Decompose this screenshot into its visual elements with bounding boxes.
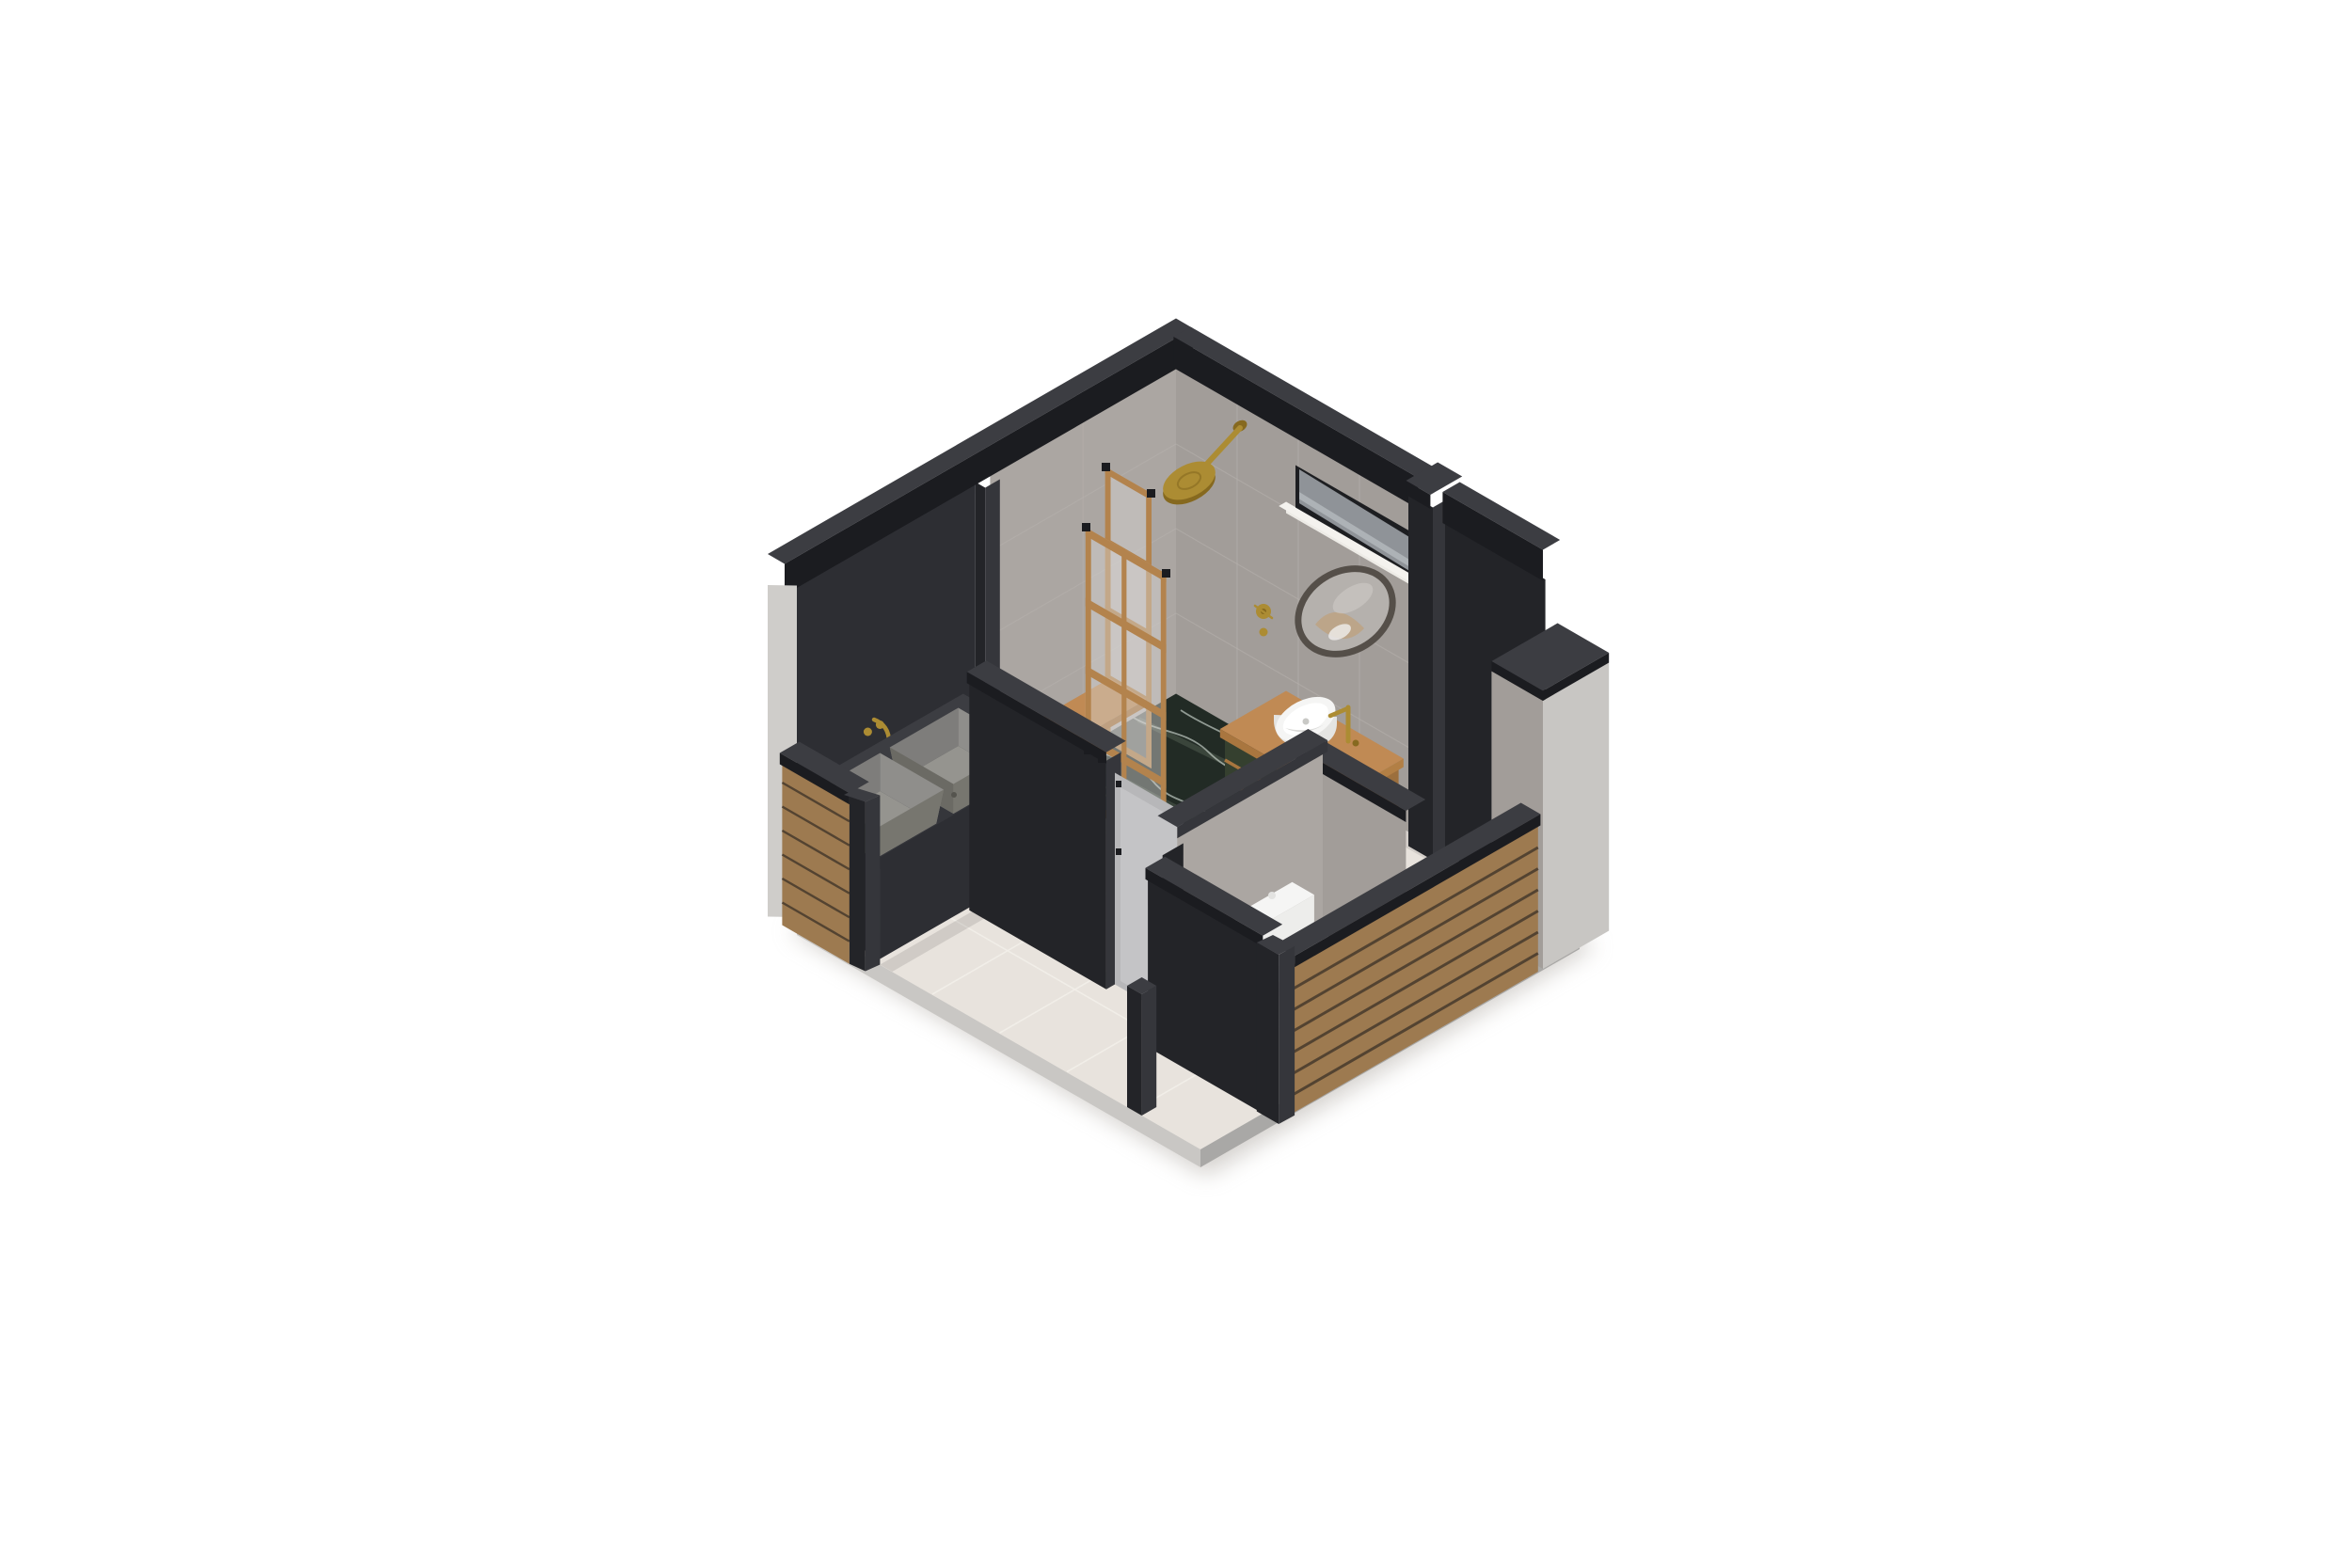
end-post-side bbox=[1279, 946, 1295, 1124]
isometric-bathroom-render bbox=[0, 0, 2352, 1568]
screen-top-bracket bbox=[1162, 569, 1170, 578]
corner-column-light-face bbox=[1543, 663, 1609, 970]
end-post-front bbox=[850, 795, 866, 972]
post-side bbox=[1142, 986, 1157, 1116]
post-front bbox=[1127, 986, 1142, 1116]
end-post-side bbox=[866, 796, 881, 972]
door-post bbox=[1127, 977, 1156, 1116]
screen-top-bracket bbox=[1147, 489, 1155, 498]
sink-drain bbox=[1303, 719, 1310, 725]
basin-drain bbox=[951, 792, 957, 798]
partition-hardware bbox=[1084, 748, 1092, 754]
valve-lower-knob bbox=[1260, 628, 1268, 637]
door-hinge bbox=[1116, 848, 1121, 855]
slat-wall-right-end-post bbox=[1257, 935, 1295, 1124]
end-post-front bbox=[1257, 942, 1279, 1125]
toilet-flush-button bbox=[1268, 892, 1276, 899]
bathroom-3d-scene bbox=[0, 0, 2352, 1568]
screen-top-bracket bbox=[1082, 523, 1090, 531]
door-hinge bbox=[1116, 781, 1121, 787]
pillar-side-face bbox=[1433, 500, 1445, 861]
vanity-tap-handle bbox=[1353, 740, 1359, 747]
faucet-handle bbox=[864, 728, 872, 736]
partition-hardware bbox=[1098, 756, 1106, 763]
screen-top-bracket bbox=[1102, 463, 1110, 471]
